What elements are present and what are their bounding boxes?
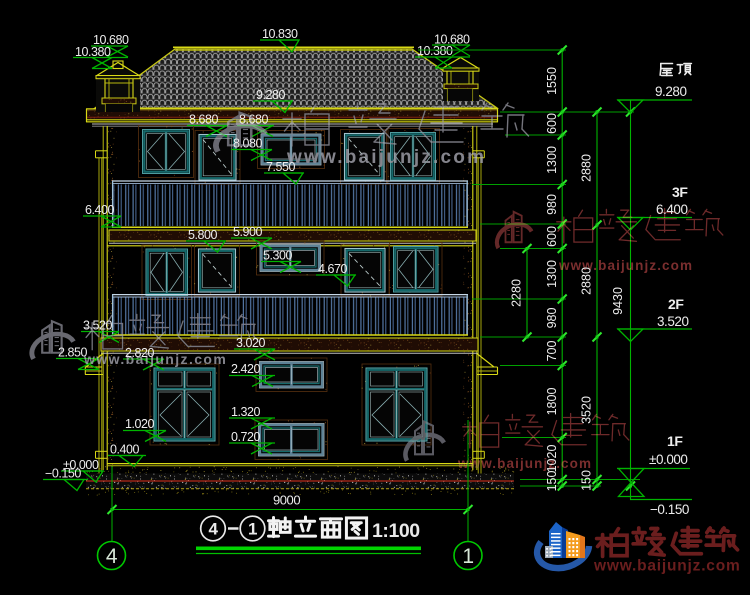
svg-text:700: 700 bbox=[545, 341, 559, 362]
svg-text:−0.150: −0.150 bbox=[45, 467, 81, 481]
svg-text:1F: 1F bbox=[667, 433, 683, 449]
svg-text:1300: 1300 bbox=[545, 260, 559, 288]
svg-text:4.670: 4.670 bbox=[318, 262, 348, 276]
svg-text:1300: 1300 bbox=[545, 146, 559, 174]
svg-text:www.baijunjz.com: www.baijunjz.com bbox=[457, 456, 592, 471]
svg-text:1550: 1550 bbox=[545, 67, 559, 95]
svg-text:5.800: 5.800 bbox=[188, 228, 218, 242]
svg-text:10.380: 10.380 bbox=[417, 44, 453, 58]
svg-text:150: 150 bbox=[545, 471, 559, 492]
svg-text:www.baijunjz.com: www.baijunjz.com bbox=[286, 147, 486, 168]
svg-text:2280: 2280 bbox=[510, 279, 524, 307]
svg-text:2.420: 2.420 bbox=[231, 362, 261, 376]
svg-text:9.280: 9.280 bbox=[256, 88, 286, 102]
svg-text:6.400: 6.400 bbox=[85, 203, 115, 217]
svg-text:600: 600 bbox=[545, 226, 559, 247]
svg-text:3.520: 3.520 bbox=[657, 314, 689, 329]
svg-text:980: 980 bbox=[545, 308, 559, 329]
svg-text:1.320: 1.320 bbox=[231, 405, 261, 419]
svg-text:5.300: 5.300 bbox=[263, 249, 293, 263]
svg-text:8.680: 8.680 bbox=[189, 113, 219, 127]
svg-text:1:100: 1:100 bbox=[372, 520, 420, 542]
svg-text:600: 600 bbox=[545, 113, 559, 134]
svg-text:3.020: 3.020 bbox=[236, 336, 266, 350]
svg-text:3F: 3F bbox=[672, 184, 688, 200]
svg-text:4: 4 bbox=[106, 545, 118, 568]
svg-text:0.720: 0.720 bbox=[231, 430, 261, 444]
svg-text:10.830: 10.830 bbox=[262, 27, 298, 41]
svg-text:1: 1 bbox=[462, 545, 473, 568]
svg-text:1.020: 1.020 bbox=[125, 417, 155, 431]
svg-text:9430: 9430 bbox=[611, 287, 625, 315]
svg-text:9.280: 9.280 bbox=[655, 84, 687, 99]
svg-text:2880: 2880 bbox=[580, 154, 594, 182]
svg-text:2F: 2F bbox=[668, 296, 684, 312]
svg-text:1: 1 bbox=[248, 520, 257, 539]
svg-text:150: 150 bbox=[580, 470, 594, 491]
svg-text:9000: 9000 bbox=[273, 493, 300, 508]
svg-text:6.400: 6.400 bbox=[656, 202, 688, 217]
svg-text:0.400: 0.400 bbox=[110, 443, 140, 457]
svg-text:www.baijunjz.com: www.baijunjz.com bbox=[593, 558, 741, 575]
svg-text:4: 4 bbox=[208, 520, 218, 539]
svg-text:www.baijunjz.com: www.baijunjz.com bbox=[83, 351, 227, 367]
svg-text:1800: 1800 bbox=[545, 388, 559, 416]
svg-text:±0.000: ±0.000 bbox=[649, 452, 688, 467]
svg-text:5.900: 5.900 bbox=[233, 225, 263, 239]
svg-text:980: 980 bbox=[545, 194, 559, 215]
svg-text:www.baijunjz.com: www.baijunjz.com bbox=[558, 258, 693, 273]
svg-text:−0.150: −0.150 bbox=[650, 502, 689, 517]
svg-text:3520: 3520 bbox=[580, 396, 594, 424]
